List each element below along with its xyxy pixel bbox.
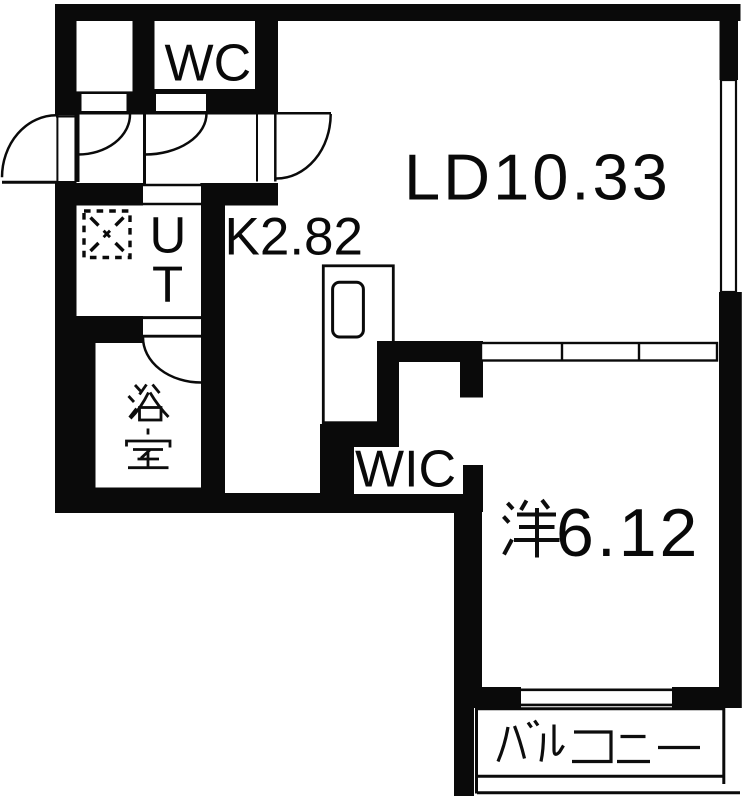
svg-text:WIC: WIC [355, 441, 456, 499]
svg-text:LD10.33: LD10.33 [404, 141, 671, 214]
svg-text:WC: WC [165, 35, 252, 93]
svg-text:6.12: 6.12 [556, 495, 700, 571]
svg-text:U: U [150, 207, 187, 264]
svg-text:K2.82: K2.82 [225, 208, 364, 267]
svg-text:T: T [152, 256, 183, 313]
